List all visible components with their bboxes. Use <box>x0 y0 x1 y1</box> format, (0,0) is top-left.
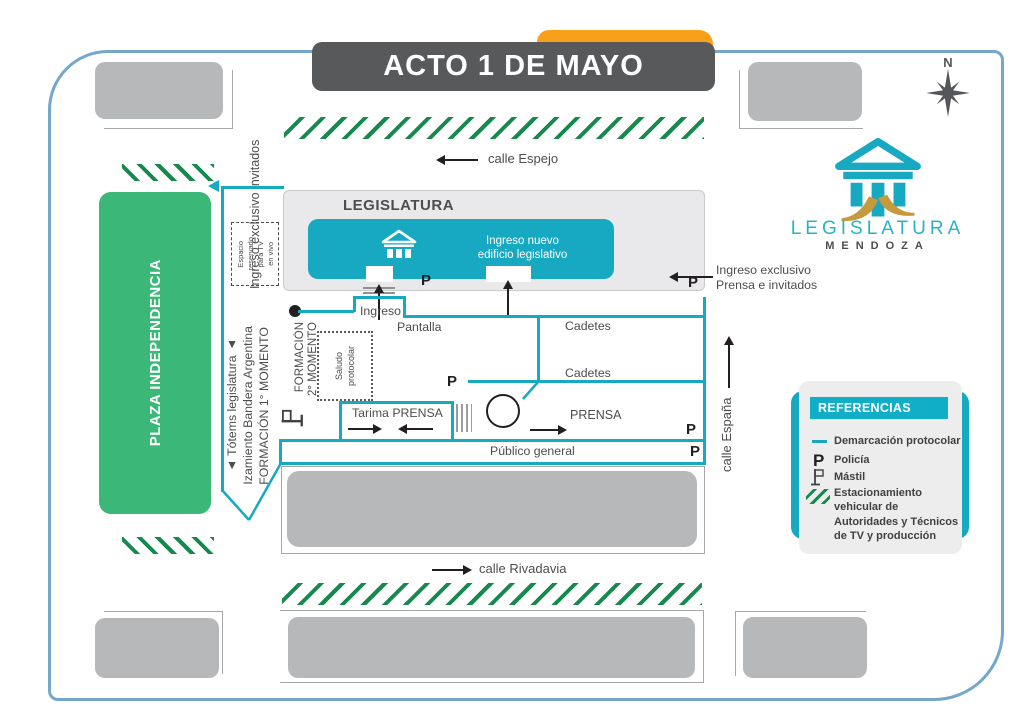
parking-hatch-rivadavia <box>282 583 702 605</box>
building-label: LEGISLATURA <box>343 197 454 214</box>
event-map: ACTO 1 DE MAYO N LEGISLATURA MENDOZA PLA… <box>0 0 1024 724</box>
arrow-right-icon <box>463 565 472 575</box>
legend-demarcacion-label: Demarcación protocolar <box>834 435 961 447</box>
tv-reserved-box: Espacio reservado para TV en vivo <box>231 222 279 286</box>
rivadavia-arrow-line <box>432 569 464 571</box>
demarcation-bracket-h <box>221 186 284 189</box>
street-rivadavia: calle Rivadavia <box>479 561 566 576</box>
tarima-arrow-line <box>348 428 375 430</box>
demarcation-line <box>353 297 356 312</box>
tv-line: en vivo <box>266 242 275 266</box>
espana-arrow-line <box>728 344 730 388</box>
arrow-right-icon <box>558 425 567 435</box>
note-formacion-2: FORMACIÓN 2° MOMENTO <box>294 322 319 414</box>
formacion2-line: FORMACIÓN <box>294 322 306 392</box>
compass-north-label: N <box>936 55 960 70</box>
parking-hatch-plaza-bottom <box>122 537 214 554</box>
building-door <box>366 266 393 282</box>
demarcation-line <box>468 380 705 383</box>
door-arrow-line <box>507 288 509 316</box>
demarcation-line <box>298 310 354 313</box>
temple-icon <box>381 229 417 259</box>
tarima-box-right <box>451 401 454 441</box>
note-izamiento: Izamiento Bandera Argentina <box>241 326 255 485</box>
arrow-left-icon <box>669 272 678 282</box>
demarcation-line <box>537 315 540 383</box>
note-formacion-1: ▲ Tótems legislatura ▲ Izamiento Bandera… <box>225 288 271 523</box>
legislatura-logo-icon <box>832 138 924 222</box>
arrow-left-icon <box>436 155 445 165</box>
publico-lane-bottom <box>279 462 706 465</box>
entrance-line2: edificio legislativo <box>450 248 595 262</box>
legend-title: REFERENCIAS <box>810 401 911 415</box>
legend-mastil-icon <box>810 467 828 487</box>
mastil-icon <box>279 403 305 429</box>
arrow-up-icon <box>374 284 384 293</box>
note-totems: ▲ Tótems legislatura ▲ <box>225 338 239 473</box>
tarima-box-left <box>339 401 342 441</box>
parking-hatch-plaza-top <box>122 164 214 181</box>
parking-hatch-espejo <box>284 117 704 139</box>
plaza-label: PLAZA INDEPENDENCIA <box>147 259 164 446</box>
city-block <box>95 62 223 119</box>
demarcation-line <box>403 296 406 317</box>
police-marker: P <box>690 444 700 459</box>
arrow-right-icon <box>373 424 382 434</box>
tv-line: para TV <box>256 241 265 268</box>
street-espana: calle España <box>719 392 734 472</box>
city-block <box>288 617 695 678</box>
plaza-independencia: PLAZA INDEPENDENCIA <box>99 192 211 514</box>
note-formacion1: FORMACIÓN 1° MOMENTO <box>257 327 271 485</box>
city-block <box>95 618 219 678</box>
compass-rose-icon <box>926 69 970 117</box>
zone-publico: Público general <box>490 444 575 458</box>
espejo-arrow-line <box>444 159 478 161</box>
city-block <box>743 617 867 678</box>
saludo-protocolar-box: Saludo protocolar <box>317 331 373 401</box>
stairs-hatch <box>456 404 472 432</box>
city-block <box>287 471 697 547</box>
zone-pantalla: Pantalla <box>397 320 441 334</box>
entrance-label: Ingreso nuevo edificio legislativo <box>450 234 595 263</box>
page-title: ACTO 1 DE MAYO <box>383 50 644 83</box>
logo-wordmark: LEGISLATURA <box>790 218 965 240</box>
entrance-line1: Ingreso nuevo <box>450 234 595 248</box>
prensa-note-line2: Prensa e invitados <box>716 278 817 293</box>
zone-prensa: PRENSA <box>570 408 621 422</box>
demarcation-bracket-v <box>221 186 224 492</box>
demarcation-line <box>403 315 705 318</box>
protocol-circle <box>486 394 520 428</box>
logo-city: MENDOZA <box>790 240 965 252</box>
title-banner: ACTO 1 DE MAYO <box>312 42 715 91</box>
teal-arrow-left-icon <box>208 180 219 192</box>
zone-tarima: Tarima PRENSA <box>352 406 443 420</box>
tarima-box-top <box>339 401 453 404</box>
prensa-entry-arrow-line <box>677 276 713 278</box>
police-marker: P <box>686 422 696 437</box>
tarima-arrow-line <box>406 428 433 430</box>
zone-ingreso: Ingreso <box>360 304 401 318</box>
arrow-up-icon <box>724 336 734 345</box>
saludo-line: Saludo <box>334 352 344 380</box>
city-block <box>748 62 862 121</box>
police-marker: P <box>447 374 457 389</box>
prensa-note-line1: Ingreso exclusivo <box>716 263 817 278</box>
police-marker: P <box>421 273 431 288</box>
legend-mastil-label: Mástil <box>834 471 865 483</box>
prensa-arrow-line <box>530 429 560 431</box>
legend-parking-icon <box>806 489 830 504</box>
zone-cadetes-bottom: Cadetes <box>565 366 611 380</box>
arrow-up-icon <box>503 280 513 289</box>
saludo-line: protocolar <box>346 346 356 386</box>
tv-line: Espacio <box>236 241 245 268</box>
publico-lane-top <box>279 439 706 442</box>
tv-line: reservado <box>246 237 255 270</box>
street-espejo: calle Espejo <box>488 151 558 166</box>
legend-header: REFERENCIAS <box>810 397 948 419</box>
demarcation-line <box>353 296 405 299</box>
note-ingreso-prensa: Ingreso exclusivo Prensa e invitados <box>716 263 817 293</box>
legend-demarcacion-icon <box>812 440 827 443</box>
legend-policia-label: Policía <box>834 454 869 466</box>
legend-estacionamiento-label: Estacionamiento vehicular de Autoridades… <box>834 486 960 543</box>
zone-cadetes-top: Cadetes <box>565 319 611 333</box>
